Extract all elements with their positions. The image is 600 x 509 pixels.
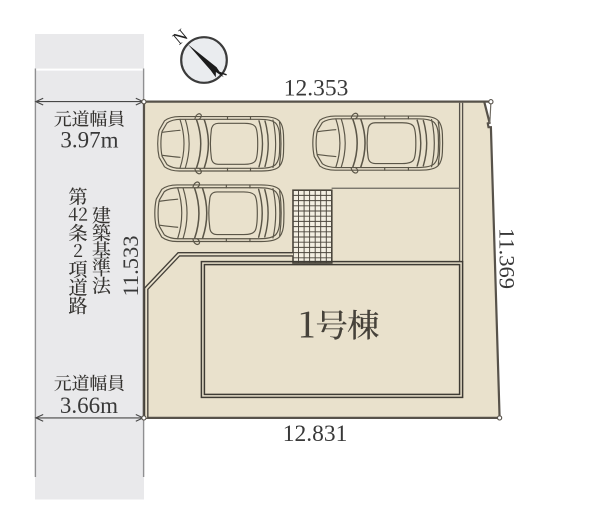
svg-text:12.831: 12.831 <box>283 421 348 447</box>
svg-text:3.66m: 3.66m <box>60 393 118 418</box>
svg-text:11.533: 11.533 <box>118 235 143 296</box>
svg-text:12.353: 12.353 <box>284 76 349 102</box>
svg-text:11.369: 11.369 <box>495 228 520 289</box>
svg-text:3.97m: 3.97m <box>60 127 118 152</box>
